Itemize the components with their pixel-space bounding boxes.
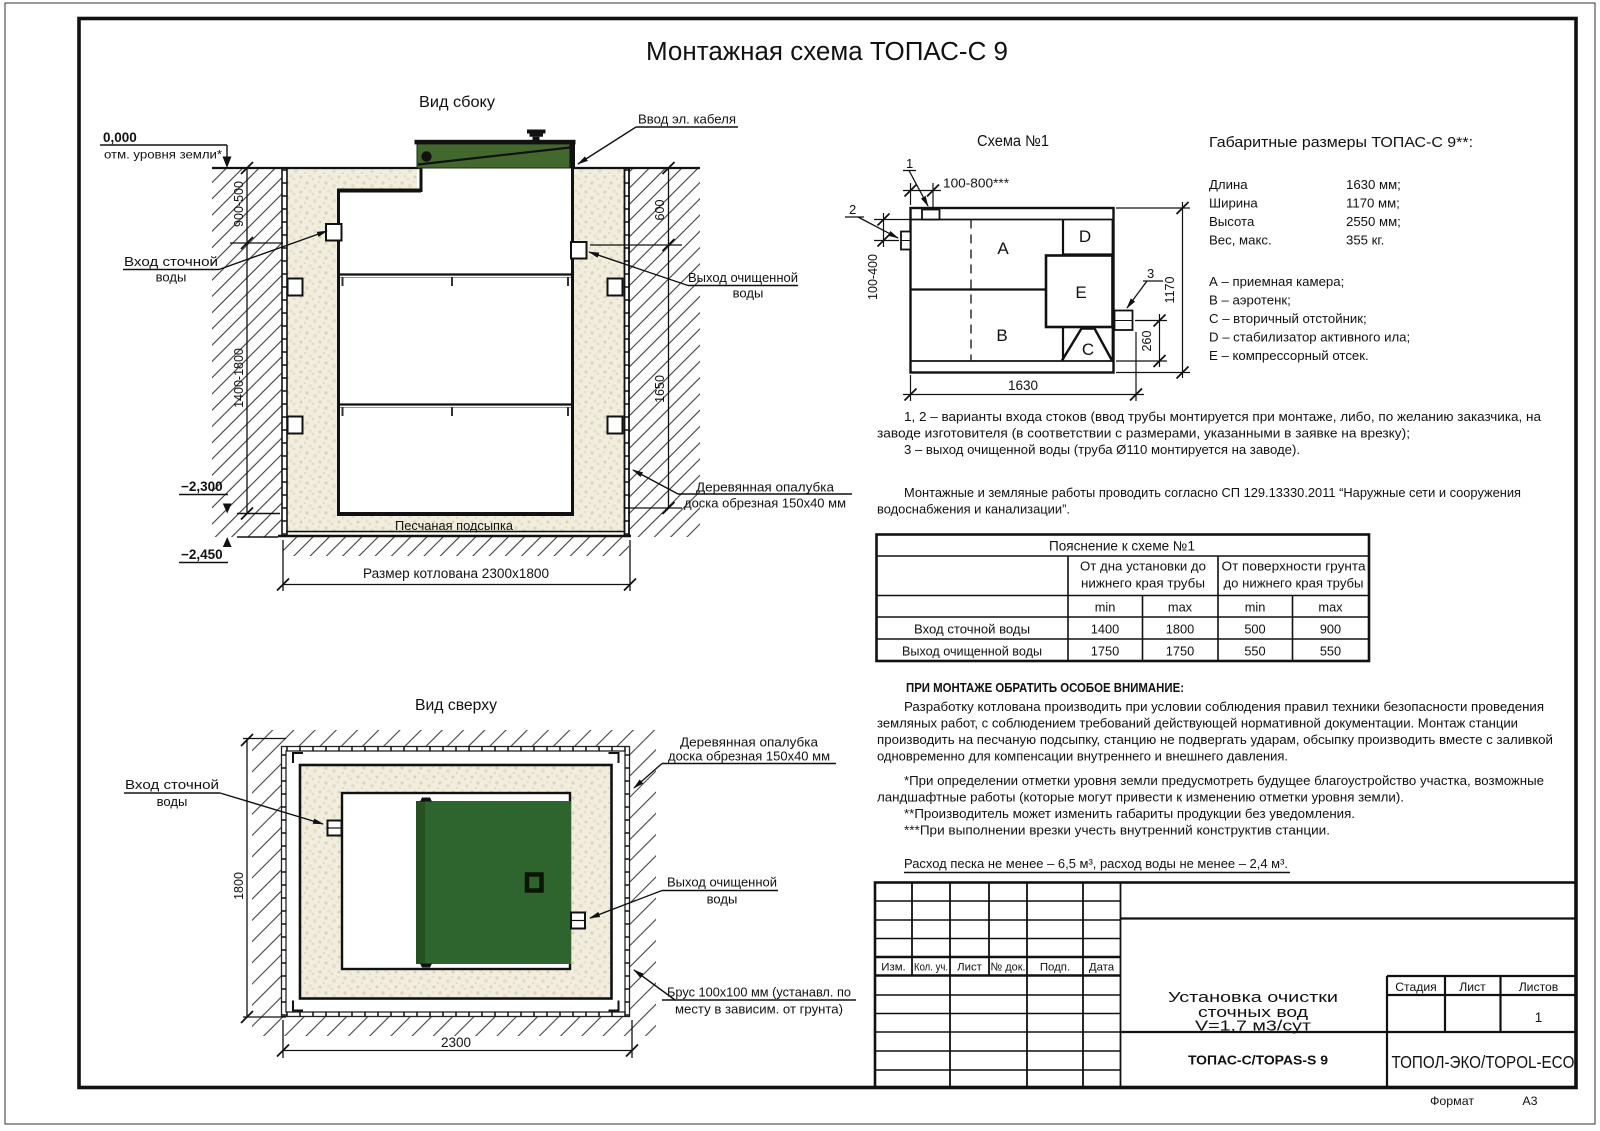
svg-text:водоснабжения и канализации”.: водоснабжения и канализации”. bbox=[877, 502, 1070, 517]
svg-text:заводе изготовителя (в соответ: заводе изготовителя (в соответствии с ра… bbox=[877, 426, 1410, 441]
svg-text:Деревянная опалубка: Деревянная опалубка bbox=[680, 735, 819, 750]
svg-text:доска обрезная 150х40 мм: доска обрезная 150х40 мм bbox=[668, 749, 830, 764]
svg-text:ТОПОЛ-ЭКО/TOPOL-ECO: ТОПОЛ-ЭКО/TOPOL-ECO bbox=[1392, 1052, 1575, 1072]
svg-text:min: min bbox=[1095, 600, 1116, 615]
svg-text:2300: 2300 bbox=[441, 1035, 471, 1050]
svg-text:ландшафтные работы (которые мо: ландшафтные работы (которые могут привес… bbox=[877, 790, 1404, 805]
svg-text:600: 600 bbox=[653, 200, 667, 221]
svg-text:−2,450: −2,450 bbox=[181, 547, 223, 562]
svg-text:1650: 1650 bbox=[653, 375, 667, 403]
svg-text:Дата: Дата bbox=[1089, 962, 1115, 974]
svg-text:одновременно для компенсации в: одновременно для компенсации внутреннего… bbox=[877, 749, 1288, 764]
svg-text:В – аэротенк;: В – аэротенк; bbox=[1209, 293, 1291, 308]
svg-text:3 – выход очищенной воды (труб: 3 – выход очищенной воды (труба Ø110 мон… bbox=[904, 442, 1300, 457]
svg-text:3: 3 bbox=[1147, 266, 1154, 281]
svg-text:1630: 1630 bbox=[1008, 378, 1038, 393]
svg-text:B: B bbox=[996, 326, 1007, 345]
svg-text:Листов: Листов bbox=[1519, 980, 1559, 994]
svg-text:Вид сверху: Вид сверху bbox=[415, 697, 497, 714]
svg-text:Размер котлована 2300х1800: Размер котлована 2300х1800 bbox=[363, 566, 549, 581]
svg-text:1400-1800: 1400-1800 bbox=[232, 348, 246, 408]
svg-text:355 кг.: 355 кг. bbox=[1346, 233, 1384, 248]
svg-text:Ширина: Ширина bbox=[1209, 196, 1258, 211]
svg-text:A: A bbox=[997, 239, 1009, 258]
svg-text:воды: воды bbox=[707, 892, 738, 907]
svg-text:1750: 1750 bbox=[1091, 644, 1119, 659]
svg-text:Разработку котлована производи: Разработку котлована производить при усл… bbox=[904, 699, 1544, 714]
svg-text:Монтажная схема ТОПАС-С 9: Монтажная схема ТОПАС-С 9 bbox=[646, 38, 1008, 66]
svg-text:Вход сточной: Вход сточной bbox=[125, 777, 219, 792]
svg-text:воды: воды bbox=[156, 270, 187, 285]
svg-text:воды: воды bbox=[157, 794, 188, 809]
svg-text:1750: 1750 bbox=[1166, 644, 1194, 659]
svg-text:1400: 1400 bbox=[1091, 622, 1119, 637]
svg-text:0,000: 0,000 bbox=[103, 130, 137, 145]
svg-text:Выход очищенной: Выход очищенной bbox=[667, 875, 777, 890]
svg-text:260: 260 bbox=[1140, 331, 1154, 352]
svg-text:2: 2 bbox=[849, 202, 856, 217]
svg-text:Пояснение к схеме №1: Пояснение к схеме №1 bbox=[1049, 539, 1195, 554]
svg-text:С – вторичный отстойник;: С – вторичный отстойник; bbox=[1209, 311, 1367, 326]
svg-text:От дна установки до: От дна установки до bbox=[1080, 560, 1206, 574]
svg-text:Габаритные размеры ТОПАС-С 9**: Габаритные размеры ТОПАС-С 9**: bbox=[1209, 135, 1473, 151]
svg-text:Брус 100х100 мм (устанавл. по: Брус 100х100 мм (устанавл. по bbox=[667, 985, 851, 1000]
svg-text:*При определении отметки уровн: *При определении отметки уровня земли пр… bbox=[904, 773, 1544, 788]
svg-text:550: 550 bbox=[1244, 644, 1265, 659]
svg-text:1, 2 – варианты входа стоков: 1, 2 – варианты входа стоков (ввод трубы… bbox=[904, 409, 1542, 424]
svg-text:***При выполнении врезки учест: ***При выполнении врезки учесть внутренн… bbox=[904, 823, 1330, 838]
svg-text:Формат: Формат bbox=[1430, 1094, 1474, 1108]
svg-text:А3: А3 bbox=[1522, 1094, 1537, 1108]
svg-text:max: max bbox=[1168, 600, 1193, 615]
svg-text:550: 550 bbox=[1320, 644, 1341, 659]
svg-text:отм. уровня земли*: отм. уровня земли* bbox=[104, 148, 222, 162]
svg-text:Стадия: Стадия bbox=[1395, 980, 1437, 994]
svg-text:месту в зависим. от грунта): месту в зависим. от грунта) bbox=[675, 1002, 843, 1017]
svg-text:производить на песчаную подсып: производить на песчаную подсыпку, станци… bbox=[877, 732, 1553, 747]
svg-text:Расход песка не менее – 6,5 м³: Расход песка не менее – 6,5 м³, расход в… bbox=[904, 856, 1288, 871]
svg-text:Вид сбоку: Вид сбоку bbox=[419, 94, 495, 111]
svg-text:D: D bbox=[1079, 227, 1091, 246]
svg-text:земляных работ, с соблюдением: земляных работ, с соблюдением требований… bbox=[877, 716, 1518, 731]
svg-text:1800: 1800 bbox=[1166, 622, 1194, 637]
svg-text:900-500: 900-500 bbox=[232, 181, 246, 227]
svg-text:ПРИ МОНТАЖЕ ОБРАТИТЬ ОСОБОЕ ВН: ПРИ МОНТАЖЕ ОБРАТИТЬ ОСОБОЕ ВНИМАНИЕ: bbox=[906, 680, 1184, 695]
svg-text:Вход сточной воды: Вход сточной воды bbox=[914, 622, 1030, 637]
svg-text:Е – компрессорный отсек.: Е – компрессорный отсек. bbox=[1209, 348, 1369, 363]
svg-text:Песчаная подсыпка: Песчаная подсыпка bbox=[395, 518, 514, 533]
svg-text:1800: 1800 bbox=[232, 872, 246, 900]
svg-text:−2,300: −2,300 bbox=[181, 479, 223, 494]
svg-text:Подп.: Подп. bbox=[1040, 962, 1070, 974]
svg-text:Схема №1: Схема №1 bbox=[977, 133, 1049, 150]
svg-text:Лист: Лист bbox=[1459, 980, 1486, 994]
svg-text:1170: 1170 bbox=[1163, 277, 1177, 304]
svg-text:до нижнего края трубы: до нижнего края трубы bbox=[1224, 577, 1364, 591]
svg-text:Ввод эл. кабеля: Ввод эл. кабеля bbox=[638, 112, 736, 127]
svg-text:Вес, макс.: Вес, макс. bbox=[1209, 233, 1272, 248]
svg-text:Высота: Высота bbox=[1209, 214, 1255, 229]
svg-text:1: 1 bbox=[1535, 1010, 1543, 1025]
svg-text:Длина: Длина bbox=[1209, 177, 1248, 192]
svg-text:500: 500 bbox=[1244, 622, 1265, 637]
svg-text:V=1,7 м3/сут: V=1,7 м3/сут bbox=[1195, 1019, 1311, 1035]
svg-text:C: C bbox=[1082, 340, 1094, 359]
svg-text:Изм.: Изм. bbox=[881, 962, 905, 974]
svg-text:ТОПАС-С/TOPAS-S 9: ТОПАС-С/TOPAS-S 9 bbox=[1188, 1053, 1328, 1068]
svg-text:**Производитель может изменить: **Производитель может изменить габариты … bbox=[904, 806, 1355, 821]
svg-text:Вход сточной: Вход сточной bbox=[124, 254, 218, 269]
svg-text:Установка очистки: Установка очистки bbox=[1168, 990, 1338, 1006]
svg-text:2550 мм;: 2550 мм; bbox=[1346, 214, 1401, 229]
svg-text:Деревянная опалубка: Деревянная опалубка bbox=[696, 480, 835, 495]
svg-text:max: max bbox=[1318, 600, 1343, 615]
svg-text:100-400: 100-400 bbox=[866, 254, 880, 300]
svg-text:E: E bbox=[1075, 283, 1086, 302]
svg-text:Выход очищенной: Выход очищенной bbox=[688, 270, 798, 285]
svg-text:1: 1 bbox=[906, 156, 913, 171]
svg-text:доска обрезная 150х40 мм: доска обрезная 150х40 мм bbox=[684, 496, 846, 511]
svg-text:Выход очищенной воды: Выход очищенной воды bbox=[902, 644, 1042, 659]
svg-text:Лист: Лист bbox=[957, 962, 983, 974]
svg-text:1630 мм;: 1630 мм; bbox=[1346, 177, 1401, 192]
svg-text:От поверхности грунта: От поверхности грунта bbox=[1222, 560, 1366, 574]
svg-text:воды: воды bbox=[733, 286, 764, 301]
svg-text:900: 900 bbox=[1320, 622, 1341, 637]
svg-text:D – стабилизатор активного ила: D – стабилизатор активного ила; bbox=[1209, 330, 1410, 345]
svg-text:№ док.: № док. bbox=[991, 962, 1026, 974]
svg-text:min: min bbox=[1245, 600, 1266, 615]
svg-text:100-800***: 100-800*** bbox=[943, 177, 1009, 191]
svg-text:А – приемная камера;: А – приемная камера; bbox=[1209, 274, 1344, 289]
svg-text:нижнего края трубы: нижнего края трубы bbox=[1081, 577, 1205, 591]
svg-text:1170 мм;: 1170 мм; bbox=[1346, 196, 1400, 211]
svg-text:Монтажные и земляные работы пр: Монтажные и земляные работы проводить со… bbox=[904, 485, 1521, 500]
svg-text:Кол. уч.: Кол. уч. bbox=[914, 962, 948, 974]
